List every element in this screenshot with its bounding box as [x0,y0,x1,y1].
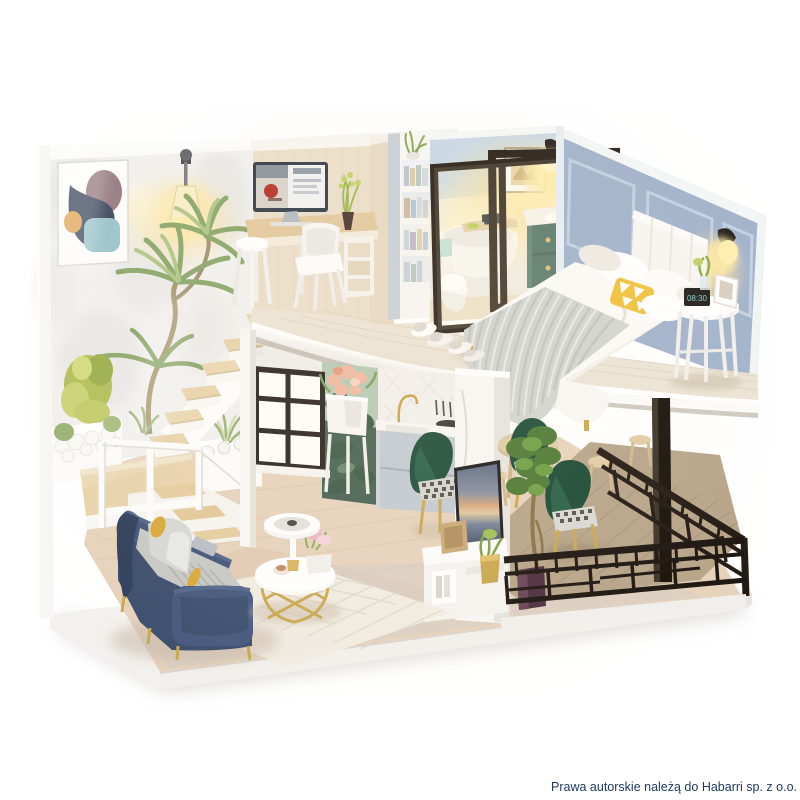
svg-text:Prawa autorskie należą do Haba: Prawa autorskie należą do Habarri sp. z … [551,780,797,794]
